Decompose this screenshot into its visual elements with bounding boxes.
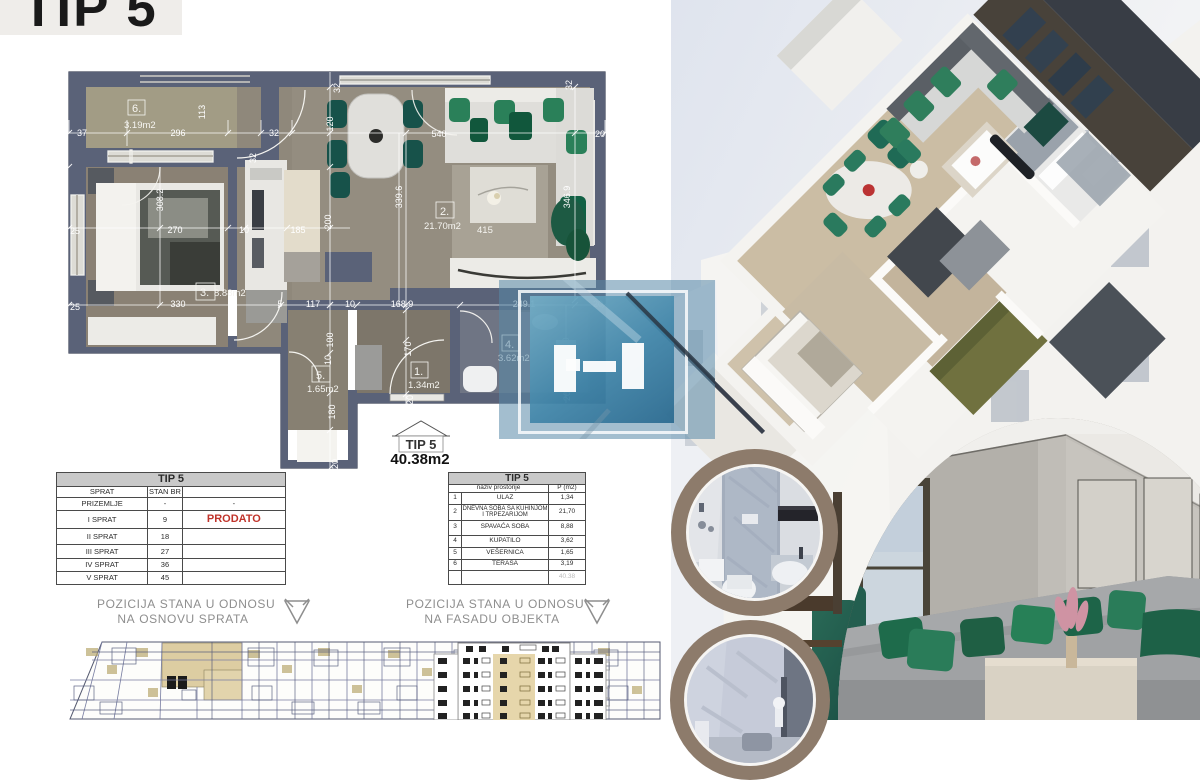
svg-text:100: 100 — [325, 332, 335, 347]
svg-text:120: 120 — [325, 116, 335, 131]
svg-text:37: 37 — [77, 128, 87, 138]
svg-text:185: 185 — [290, 225, 305, 235]
svg-text:10: 10 — [239, 225, 249, 235]
svg-text:32: 32 — [269, 128, 279, 138]
svg-text:415: 415 — [477, 225, 493, 236]
svg-text:TIP 5: TIP 5 — [406, 437, 437, 452]
svg-text:3.: 3. — [200, 287, 209, 299]
svg-text:1.65m2: 1.65m2 — [307, 384, 339, 395]
svg-text:8.88m2: 8.88m2 — [214, 288, 246, 299]
svg-text:40.38m2: 40.38m2 — [390, 451, 449, 468]
svg-text:346.9: 346.9 — [562, 186, 572, 209]
svg-text:1.34m2: 1.34m2 — [408, 380, 440, 391]
svg-text:20: 20 — [405, 395, 415, 405]
svg-text:3.19m2: 3.19m2 — [124, 120, 156, 131]
svg-text:168.9: 168.9 — [391, 299, 414, 309]
svg-text:6.: 6. — [132, 103, 141, 115]
svg-text:180: 180 — [327, 404, 337, 419]
svg-text:540: 540 — [431, 129, 446, 139]
svg-text:1.: 1. — [414, 366, 423, 378]
svg-text:2.: 2. — [440, 206, 449, 218]
svg-text:330: 330 — [170, 299, 185, 309]
svg-text:10: 10 — [345, 299, 355, 309]
svg-text:32: 32 — [248, 153, 258, 163]
svg-text:308.2: 308.2 — [155, 189, 165, 212]
svg-text:170: 170 — [403, 341, 413, 356]
svg-text:32: 32 — [564, 80, 574, 90]
svg-text:25: 25 — [70, 302, 80, 312]
svg-text:113: 113 — [197, 105, 207, 119]
svg-text:270: 270 — [167, 225, 182, 235]
svg-text:20: 20 — [595, 129, 605, 139]
svg-text:21.70m2: 21.70m2 — [424, 221, 461, 232]
svg-text:5.: 5. — [316, 370, 325, 382]
svg-text:25: 25 — [70, 226, 80, 236]
svg-text:117: 117 — [306, 299, 320, 309]
svg-text:296: 296 — [170, 128, 185, 138]
svg-text:200: 200 — [323, 214, 333, 229]
svg-text:20: 20 — [330, 459, 340, 469]
svg-text:10: 10 — [323, 355, 333, 365]
svg-text:5: 5 — [277, 299, 282, 309]
svg-text:32: 32 — [332, 83, 342, 93]
svg-text:339.6: 339.6 — [394, 186, 404, 209]
